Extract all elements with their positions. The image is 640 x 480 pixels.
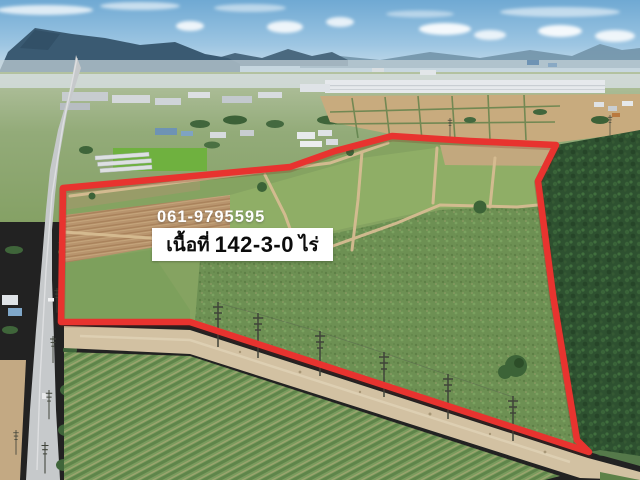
land-sale-aerial-photo: 061-9795595 เนื้อที่ 142-3-0 ไร่ <box>0 0 640 480</box>
area-label-unit: ไร่ <box>299 230 319 260</box>
area-label-value: 142-3-0 <box>215 232 294 258</box>
area-label-prefix: เนื้อที่ <box>166 230 209 260</box>
phone-number-text: 061-9795595 <box>157 208 265 227</box>
area-label: เนื้อที่ 142-3-0 ไร่ <box>152 228 333 261</box>
